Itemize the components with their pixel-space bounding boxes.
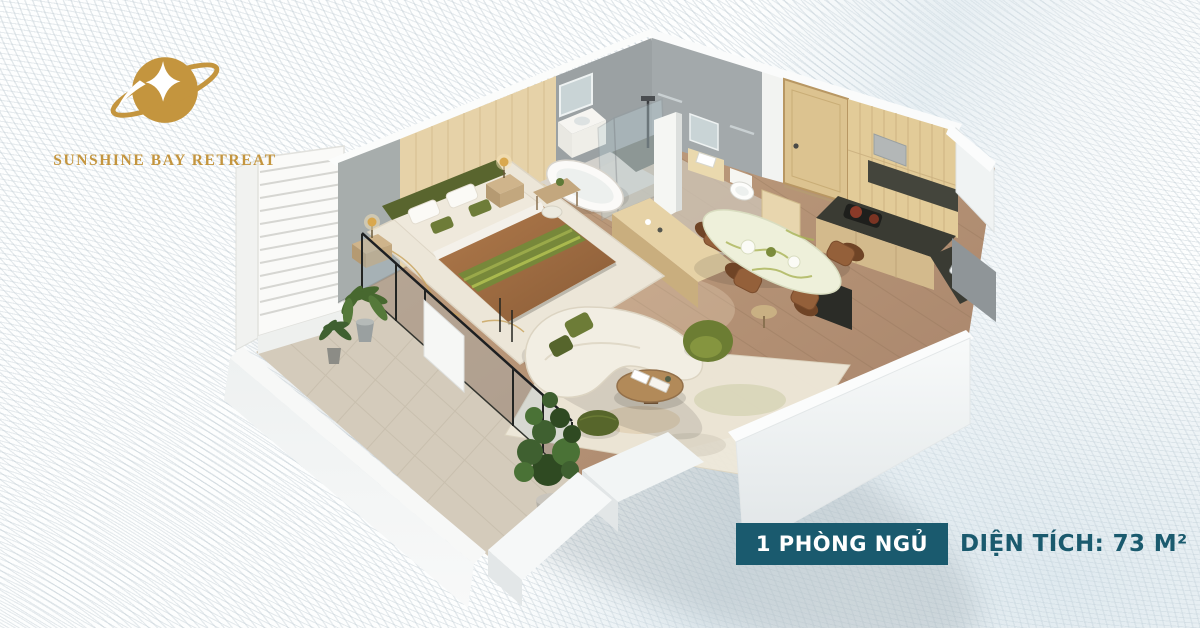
planet-star-icon: [55, 34, 275, 150]
coffee-table: [614, 369, 686, 410]
decor-item: [658, 228, 663, 233]
entry-door: [784, 79, 848, 203]
bedrooms-badge: 1 PHÒNG NGỦ: [736, 523, 948, 565]
desk-plant: [556, 178, 564, 186]
cooking-pot: [869, 214, 879, 224]
shower-head: [641, 96, 655, 101]
door-handle: [793, 143, 798, 148]
bowl: [766, 247, 776, 257]
entry-wall-strip: [762, 72, 784, 183]
louver-panel: [258, 146, 344, 336]
louver-column: [236, 160, 258, 350]
decor-item: [645, 219, 651, 225]
banner: SUNSHINE BAY RETREAT 1 PHÒNG NGỦ DIỆN TÍ…: [0, 0, 1200, 628]
plant-pot: [327, 348, 341, 364]
plate: [741, 240, 755, 254]
gold-lamp: [368, 218, 377, 227]
brand-name: SUNSHINE BAY RETREAT: [50, 152, 280, 170]
green-armchair: [683, 320, 733, 362]
wc-partition-side: [676, 112, 682, 212]
table-plant: [665, 376, 671, 382]
green-pouf: [576, 410, 620, 439]
sink-basin: [574, 117, 590, 126]
area-label: DIỆN TÍCH: 73 M²: [960, 523, 1188, 565]
plate: [788, 256, 800, 268]
cooking-pot: [850, 206, 862, 218]
stool: [542, 206, 562, 218]
gold-lamp: [500, 158, 509, 167]
louver-screen: [236, 146, 344, 354]
brand-logo: SUNSHINE BAY RETREAT: [50, 34, 280, 170]
